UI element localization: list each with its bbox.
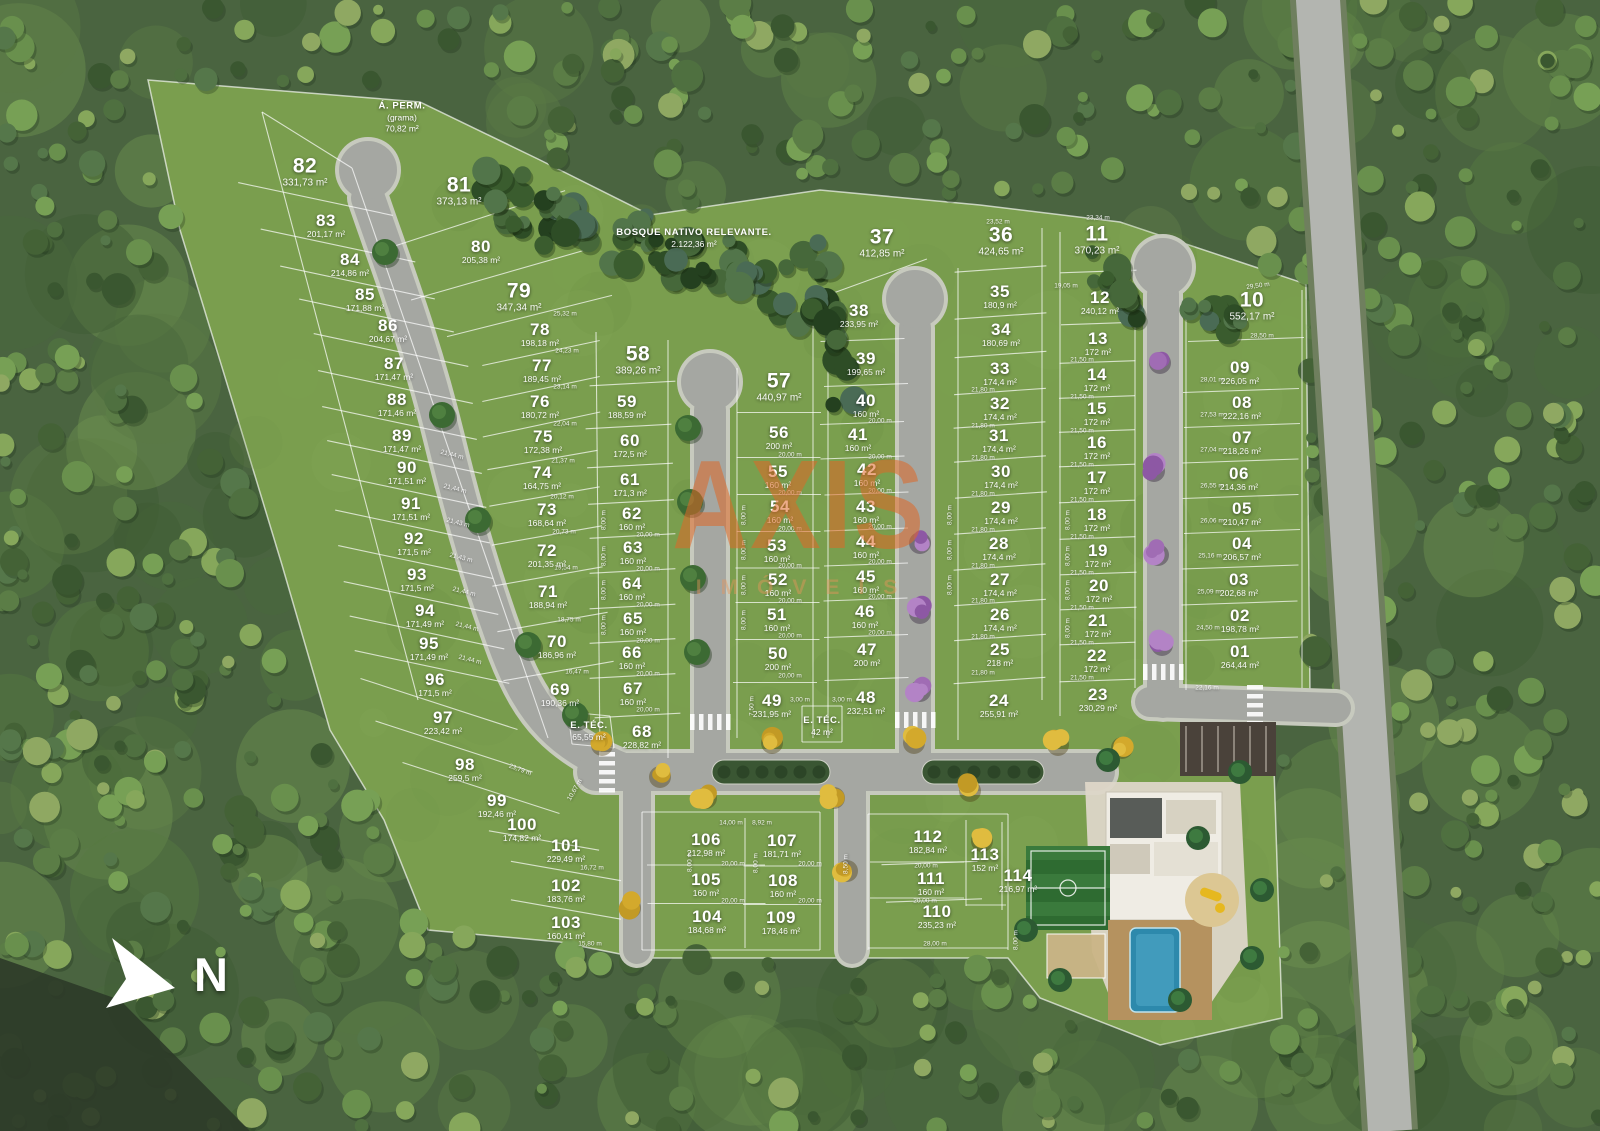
dimension-label: 8,00 m <box>947 575 954 595</box>
lot-114: 114216,97 m² <box>999 867 1037 895</box>
dimension-label: 24,50 m <box>1196 625 1220 632</box>
lot-number: 38 <box>840 302 878 320</box>
lot-area: 198,78 m² <box>1221 626 1259 635</box>
lot-112: 112182,84 m² <box>909 828 947 856</box>
lot-number: 52 <box>765 571 791 589</box>
lot-area: 160 m² <box>620 699 646 708</box>
lot-48: 48232,51 m² <box>847 689 885 717</box>
lot-number: 26 <box>983 606 1017 624</box>
dimension-label: 18,75 m <box>557 617 581 624</box>
lot-number: 94 <box>406 602 444 620</box>
lot-number: 68 <box>623 723 661 741</box>
lot-number: 08 <box>1223 394 1261 412</box>
lot-number: 06 <box>1220 465 1258 483</box>
lot-81: 81373,13 m² <box>436 174 481 207</box>
lot-number: 71 <box>529 583 567 601</box>
lot-55: 55160 m² <box>765 463 791 491</box>
lot-82: 82331,73 m² <box>282 155 327 188</box>
lot-number: 109 <box>762 909 800 927</box>
lot-51: 51160 m² <box>764 606 790 634</box>
lot-number: 73 <box>528 501 566 519</box>
lot-number: 97 <box>424 709 462 727</box>
lot-11: 11370,23 m² <box>1074 223 1119 256</box>
annotation-etec-1: E. TÉC.65,55 m² <box>570 720 607 743</box>
lot-area: 201,35 m² <box>528 561 566 570</box>
lot-39: 39199,65 m² <box>847 350 885 378</box>
lot-number: 103 <box>547 914 585 932</box>
dimension-label: 8,00 m <box>1065 580 1072 600</box>
lot-area: 171,47 m² <box>383 446 421 455</box>
lot-30: 30174,4 m² <box>984 463 1018 491</box>
lot-number: 69 <box>541 681 579 699</box>
lot-area: 172 m² <box>1085 561 1111 570</box>
lot-area: 188,59 m² <box>608 412 646 421</box>
dimension-label: 25,32 m <box>553 311 577 318</box>
lot-96: 96171,5 m² <box>418 671 452 699</box>
lot-27: 27174,4 m² <box>983 571 1017 599</box>
lot-103: 103160,41 m² <box>547 914 585 942</box>
dimension-label: 20,00 m <box>778 526 802 533</box>
lot-number: 36 <box>978 224 1023 247</box>
lot-area: 160 m² <box>852 622 878 631</box>
lot-number: 55 <box>765 463 791 481</box>
dimension-label: 8,00 m <box>601 510 608 530</box>
lot-area: 264,44 m² <box>1221 662 1259 671</box>
lot-21: 21172 m² <box>1085 612 1111 640</box>
lot-number: 102 <box>547 877 585 895</box>
lot-number: 76 <box>521 393 559 411</box>
lot-number: 56 <box>766 424 792 442</box>
dimension-label: 28,00 m <box>923 941 947 948</box>
lot-49: 49231,95 m² <box>753 692 791 720</box>
dimension-label: 14,00 m <box>719 820 743 827</box>
lot-area: 230,29 m² <box>1079 705 1117 714</box>
lot-area: 180,9 m² <box>983 302 1017 311</box>
lot-number: 79 <box>496 280 541 303</box>
lot-area: 174,82 m² <box>503 835 541 844</box>
lot-number: 65 <box>620 610 646 628</box>
dimension-label: 27,53 m <box>1200 412 1224 419</box>
lot-90: 90171,51 m² <box>388 459 426 487</box>
lot-number: 91 <box>392 495 430 513</box>
lot-number: 74 <box>523 464 561 482</box>
annotation-line: 42 m² <box>803 727 840 738</box>
lot-34: 34180,69 m² <box>982 321 1020 349</box>
lot-101: 101229,49 m² <box>547 837 585 865</box>
lot-area: 171,51 m² <box>388 478 426 487</box>
lot-22: 22172 m² <box>1084 647 1110 675</box>
lot-number: 96 <box>418 671 452 689</box>
dimension-label: 8,00 m <box>1065 546 1072 566</box>
lot-66: 66160 m² <box>619 644 645 672</box>
dimension-label: 21,50 m <box>1070 497 1094 504</box>
lot-46: 46160 m² <box>852 603 878 631</box>
lot-09: 09226,05 m² <box>1221 359 1259 387</box>
lot-area: 200 m² <box>765 664 791 673</box>
dimension-label: 19,05 m <box>1054 283 1078 290</box>
north-arrow-icon <box>92 925 292 1025</box>
lot-number: 101 <box>547 837 585 855</box>
lot-78: 78198,18 m² <box>521 321 559 349</box>
lot-56: 56200 m² <box>766 424 792 452</box>
dimension-label: 28,50 m <box>1250 333 1274 340</box>
lot-number: 01 <box>1221 643 1259 661</box>
lot-97: 97223,42 m² <box>424 709 462 737</box>
lot-29: 29174,4 m² <box>984 499 1018 527</box>
lot-area: 172 m² <box>1085 349 1111 358</box>
dimension-label: 27,04 m <box>1200 447 1224 454</box>
lot-area: 160 m² <box>619 594 645 603</box>
lot-area: 218,26 m² <box>1223 448 1261 457</box>
annotation-line: (grama) <box>378 112 425 123</box>
dimension-label: 8,50 m <box>843 854 850 874</box>
lot-area: 223,42 m² <box>424 728 462 737</box>
lot-number: 72 <box>528 542 566 560</box>
lot-number: 112 <box>909 828 947 846</box>
lot-03: 03202,68 m² <box>1220 571 1258 599</box>
lot-number: 85 <box>346 286 384 304</box>
dimension-label: 8,00 m <box>601 580 608 600</box>
dimension-label: 8,00 m <box>741 575 748 595</box>
lot-area: 164,75 m² <box>523 483 561 492</box>
lot-number: 10 <box>1229 289 1274 312</box>
lot-area: 160,41 m² <box>547 933 585 942</box>
lot-35: 35180,9 m² <box>983 283 1017 311</box>
lot-number: 48 <box>847 689 885 707</box>
lot-number: 59 <box>608 393 646 411</box>
lot-number: 39 <box>847 350 885 368</box>
lot-number: 60 <box>613 432 647 450</box>
lot-area: 152 m² <box>971 865 1000 874</box>
lot-number: 31 <box>982 427 1016 445</box>
lot-95: 95171,49 m² <box>410 635 448 663</box>
lot-area: 389,26 m² <box>615 366 660 377</box>
lot-number: 78 <box>521 321 559 339</box>
dimension-label: 8,00 m <box>741 505 748 525</box>
lot-area: 160 m² <box>853 411 879 420</box>
lot-91: 91171,51 m² <box>392 495 430 523</box>
lot-number: 107 <box>763 832 801 850</box>
lot-36: 36424,65 m² <box>978 224 1023 257</box>
lot-area: 212,98 m² <box>687 850 725 859</box>
lot-77: 77189,45 m² <box>523 357 561 385</box>
lot-area: 168,64 m² <box>528 520 566 529</box>
lot-area: 172 m² <box>1086 596 1112 605</box>
lot-50: 50200 m² <box>765 645 791 673</box>
lot-38: 38233,95 m² <box>840 302 878 330</box>
lot-85: 85171,88 m² <box>346 286 384 314</box>
lot-area: 172 m² <box>1085 631 1111 640</box>
lot-area: 370,23 m² <box>1074 246 1119 257</box>
lot-area: 160 m² <box>854 480 880 489</box>
lot-area: 201,17 m² <box>307 231 345 240</box>
lot-25: 25218 m² <box>987 641 1013 669</box>
lot-54: 54160 m² <box>767 498 793 526</box>
lot-number: 07 <box>1223 429 1261 447</box>
lot-area: 172,5 m² <box>613 451 647 460</box>
lot-area: 171,49 m² <box>410 654 448 663</box>
annotation-line: BOSQUE NATIVO RELEVANTE. <box>616 227 772 239</box>
lot-number: 53 <box>764 537 790 555</box>
lot-06: 06214,36 m² <box>1220 465 1258 493</box>
lot-number: 77 <box>523 357 561 375</box>
lot-area: 178,46 m² <box>762 928 800 937</box>
lot-number: 20 <box>1086 577 1112 595</box>
dimension-label: 20,00 m <box>778 673 802 680</box>
lot-number: 04 <box>1223 535 1261 553</box>
lot-111: 111160 m² <box>917 870 945 898</box>
lot-area: 174,4 m² <box>982 446 1016 455</box>
lot-area: 347,34 m² <box>496 303 541 314</box>
lot-43: 43160 m² <box>853 498 879 526</box>
lot-area: 240,12 m² <box>1081 308 1119 317</box>
lot-number: 13 <box>1085 330 1111 348</box>
lot-64: 64160 m² <box>619 575 645 603</box>
lot-number: 86 <box>369 317 407 335</box>
lot-number: 02 <box>1221 607 1259 625</box>
lot-area: 189,45 m² <box>523 376 561 385</box>
lot-area: 160 m² <box>917 889 945 898</box>
lot-32: 32174,4 m² <box>983 395 1017 423</box>
lot-61: 61171,3 m² <box>613 471 647 499</box>
lot-65: 65160 m² <box>620 610 646 638</box>
annotation-line: Á. PERM. <box>378 100 425 112</box>
lot-area: 182,84 m² <box>909 847 947 856</box>
lot-number: 42 <box>854 461 880 479</box>
lot-number: 84 <box>331 251 369 269</box>
lot-41: 41160 m² <box>845 426 871 454</box>
lot-number: 37 <box>859 226 904 249</box>
lot-area: 171,5 m² <box>418 690 452 699</box>
lot-area: 171,88 m² <box>346 305 384 314</box>
dimension-label: 23,34 m <box>1086 215 1110 222</box>
lot-94: 94171,49 m² <box>406 602 444 630</box>
lot-number: 23 <box>1079 686 1117 704</box>
lot-number: 46 <box>852 603 878 621</box>
master-plan-map: 01264,44 m²02198,78 m²03202,68 m²04206,5… <box>0 0 1600 1131</box>
lot-area: 214,86 m² <box>331 270 369 279</box>
lot-area: 160 m² <box>767 517 793 526</box>
lot-number: 64 <box>619 575 645 593</box>
lot-area: 172 m² <box>1084 666 1110 675</box>
lot-71: 71188,94 m² <box>529 583 567 611</box>
lot-number: 63 <box>620 539 646 557</box>
dimension-label: 21,80 m <box>971 670 995 677</box>
lot-75: 75172,38 m² <box>524 428 562 456</box>
dimension-label: 25,16 m <box>1198 553 1222 560</box>
lot-area: 172 m² <box>1084 525 1110 534</box>
lot-area: 198,18 m² <box>521 340 559 349</box>
lot-number: 35 <box>983 283 1017 301</box>
lot-28: 28174,4 m² <box>982 535 1016 563</box>
lot-area: 440,97 m² <box>756 393 801 404</box>
north-indicator: N <box>92 925 292 1025</box>
lot-107: 107181,71 m² <box>763 832 801 860</box>
lot-number: 75 <box>524 428 562 446</box>
lot-area: 160 m² <box>764 625 790 634</box>
lot-number: 90 <box>388 459 426 477</box>
lot-58: 58389,26 m² <box>615 343 660 376</box>
dimension-label: 21,80 m <box>971 455 995 462</box>
lot-number: 100 <box>503 816 541 834</box>
lot-number: 05 <box>1223 500 1261 518</box>
lot-93: 93171,5 m² <box>400 566 434 594</box>
lot-33: 33174,4 m² <box>983 360 1017 388</box>
lot-number: 62 <box>619 505 645 523</box>
lot-number: 24 <box>980 692 1018 710</box>
dimension-label: 21,50 m <box>1070 675 1094 682</box>
lot-area: 222,16 m² <box>1223 413 1261 422</box>
lot-area: 160 m² <box>691 890 721 899</box>
lot-number: 51 <box>764 606 790 624</box>
lot-40: 40160 m² <box>853 392 879 420</box>
lot-68: 68228,82 m² <box>623 723 661 751</box>
lot-area: 174,4 m² <box>983 379 1017 388</box>
lot-area: 160 m² <box>619 524 645 533</box>
lot-number: 03 <box>1220 571 1258 589</box>
lot-number: 11 <box>1074 223 1119 246</box>
dimension-label: 8,00 m <box>741 540 748 560</box>
lot-110: 110235,23 m² <box>918 903 956 931</box>
lot-number: 45 <box>853 568 879 586</box>
dimension-label: 20,00 m <box>721 898 745 905</box>
lot-number: 93 <box>400 566 434 584</box>
lot-number: 106 <box>687 831 725 849</box>
dimension-label: 20,00 m <box>778 452 802 459</box>
lot-number: 28 <box>982 535 1016 553</box>
lot-area: 218 m² <box>987 660 1013 669</box>
lot-number: 82 <box>282 155 327 178</box>
annotation-line: 2.122,36 m² <box>616 239 772 250</box>
lot-72: 72201,35 m² <box>528 542 566 570</box>
lot-area: 232,51 m² <box>847 708 885 717</box>
lot-area: 160 m² <box>620 629 646 638</box>
lot-area: 160 m² <box>765 590 791 599</box>
lot-23: 23230,29 m² <box>1079 686 1117 714</box>
lot-92: 92171,5 m² <box>397 530 431 558</box>
lot-area: 190,36 m² <box>541 700 579 709</box>
lot-number: 43 <box>853 498 879 516</box>
lot-area: 412,85 m² <box>859 249 904 260</box>
lot-area: 231,95 m² <box>753 711 791 720</box>
lot-area: 183,76 m² <box>547 896 585 905</box>
lot-number: 89 <box>383 427 421 445</box>
lot-26: 26174,4 m² <box>983 606 1017 634</box>
annotation-line: 65,55 m² <box>570 732 607 743</box>
lot-area: 171,3 m² <box>613 490 647 499</box>
dimension-label: 8,00 m <box>1065 510 1072 530</box>
lot-area: 172 m² <box>1084 453 1110 462</box>
lot-area: 174,4 m² <box>982 554 1016 563</box>
lot-15: 15172 m² <box>1084 400 1110 428</box>
lot-44: 44160 m² <box>853 533 879 561</box>
lot-area: 174,4 m² <box>983 590 1017 599</box>
lot-area: 210,47 m² <box>1223 519 1261 528</box>
lot-08: 08222,16 m² <box>1223 394 1261 422</box>
lot-07: 07218,26 m² <box>1223 429 1261 457</box>
lot-area: 160 m² <box>853 517 879 526</box>
lot-area: 216,97 m² <box>999 886 1037 895</box>
lot-area: 206,57 m² <box>1223 554 1261 563</box>
annotation-line: E. TÉC. <box>570 720 607 732</box>
lot-number: 41 <box>845 426 871 444</box>
lot-number: 15 <box>1084 400 1110 418</box>
lot-area: 171,5 m² <box>400 585 434 594</box>
lot-42: 42160 m² <box>854 461 880 489</box>
lot-number: 88 <box>378 391 416 409</box>
lot-number: 95 <box>410 635 448 653</box>
lot-84: 84214,86 m² <box>331 251 369 279</box>
lot-area: 226,05 m² <box>1221 378 1259 387</box>
lot-number: 21 <box>1085 612 1111 630</box>
lot-area: 174,4 m² <box>984 518 1018 527</box>
north-label: N <box>194 947 228 1002</box>
lot-67: 67160 m² <box>620 680 646 708</box>
lot-number: 18 <box>1084 506 1110 524</box>
lot-number: 54 <box>767 498 793 516</box>
lot-area: 424,65 m² <box>978 247 1023 258</box>
lot-109: 109178,46 m² <box>762 909 800 937</box>
dimension-label: 3,00 m <box>790 697 810 704</box>
lot-number: 98 <box>448 756 482 774</box>
lot-79: 79347,34 m² <box>496 280 541 313</box>
lot-number: 81 <box>436 174 481 197</box>
lot-31: 31174,4 m² <box>982 427 1016 455</box>
lot-area: 181,71 m² <box>763 851 801 860</box>
lot-area: 174,4 m² <box>983 414 1017 423</box>
lot-80: 80205,38 m² <box>462 238 500 266</box>
lot-area: 259,5 m² <box>448 775 482 784</box>
lot-10: 10552,17 m² <box>1229 289 1274 322</box>
lot-number: 70 <box>538 633 576 651</box>
lot-area: 172 m² <box>1084 419 1110 428</box>
lot-area: 172,38 m² <box>524 447 562 456</box>
dimension-label: 16,72 m <box>580 865 604 872</box>
lot-88: 88171,46 m² <box>378 391 416 419</box>
lot-area: 235,23 m² <box>918 922 956 931</box>
lot-area: 228,82 m² <box>623 742 661 751</box>
lot-number: 99 <box>478 792 516 810</box>
lot-number: 114 <box>999 867 1037 885</box>
dimension-label: 21,80 m <box>971 491 995 498</box>
lot-area: 180,72 m² <box>521 412 559 421</box>
dimension-label: 8,00 m <box>753 853 760 873</box>
lot-area: 202,68 m² <box>1220 590 1258 599</box>
lot-area: 160 m² <box>853 587 879 596</box>
dimension-label: 20,73 m <box>552 529 576 536</box>
lot-02: 02198,78 m² <box>1221 607 1259 635</box>
lot-area: 180,69 m² <box>982 340 1020 349</box>
lot-37: 37412,85 m² <box>859 226 904 259</box>
lot-63: 63160 m² <box>620 539 646 567</box>
lot-105: 105160 m² <box>691 871 721 899</box>
dimension-label: 8,00 m <box>741 610 748 630</box>
lot-70: 70186,96 m² <box>538 633 576 661</box>
lot-number: 110 <box>918 903 956 921</box>
lot-number: 44 <box>853 533 879 551</box>
dimension-label: 21,50 m <box>1070 534 1094 541</box>
lot-area: 233,95 m² <box>840 321 878 330</box>
dimension-label: 8,00 m <box>947 540 954 560</box>
lot-area: 171,49 m² <box>406 621 444 630</box>
lot-number: 19 <box>1085 542 1111 560</box>
lot-number: 57 <box>756 370 801 393</box>
lot-area: 255,91 m² <box>980 711 1018 720</box>
lot-04: 04206,57 m² <box>1223 535 1261 563</box>
lot-86: 86204,67 m² <box>369 317 407 345</box>
lot-number: 61 <box>613 471 647 489</box>
dimension-label: 8,92 m <box>752 820 772 827</box>
